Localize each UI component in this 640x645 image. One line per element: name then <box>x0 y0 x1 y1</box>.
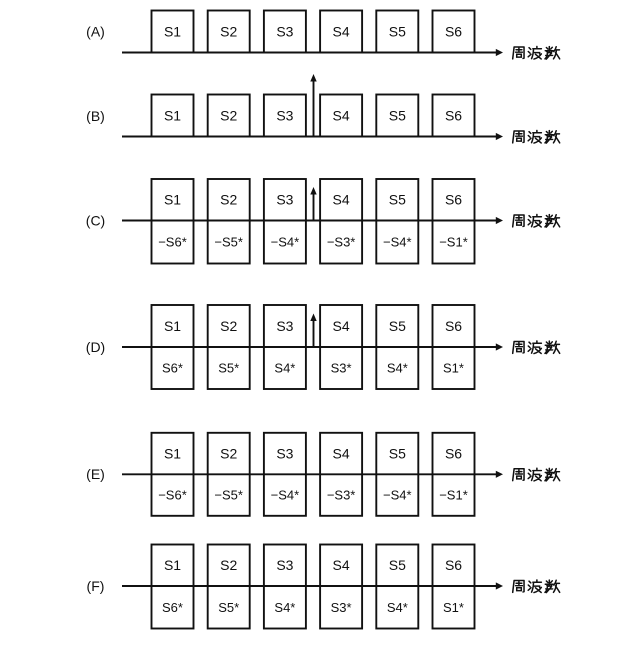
svg-text:S1: S1 <box>164 23 181 39</box>
svg-text:S4*: S4* <box>274 361 295 376</box>
svg-text:S2: S2 <box>220 318 237 334</box>
svg-text:S6: S6 <box>445 192 462 208</box>
svg-text:S5*: S5* <box>218 600 239 615</box>
svg-text:S6*: S6* <box>162 600 183 615</box>
svg-text:S1: S1 <box>164 192 181 208</box>
svg-text:(F): (F) <box>87 578 105 594</box>
svg-text:S4*: S4* <box>274 600 295 615</box>
svg-text:−S4*: −S4* <box>271 235 300 250</box>
svg-text:S4: S4 <box>333 557 350 573</box>
svg-text:S3: S3 <box>276 107 293 123</box>
svg-text:S3: S3 <box>276 23 293 39</box>
svg-text:S4*: S4* <box>387 361 408 376</box>
svg-text:S5: S5 <box>389 192 406 208</box>
svg-text:−S6*: −S6* <box>158 488 187 503</box>
svg-text:−S5*: −S5* <box>214 488 243 503</box>
svg-text:S3*: S3* <box>331 600 352 615</box>
svg-text:S4*: S4* <box>387 600 408 615</box>
svg-text:S5: S5 <box>389 557 406 573</box>
svg-text:−S1*: −S1* <box>439 235 468 250</box>
svg-text:S2: S2 <box>220 23 237 39</box>
svg-text:S2: S2 <box>220 192 237 208</box>
svg-text:−S4*: −S4* <box>271 488 300 503</box>
svg-text:−S3*: −S3* <box>327 488 356 503</box>
svg-text:S6: S6 <box>445 107 462 123</box>
svg-text:S3: S3 <box>276 445 293 461</box>
svg-text:S2: S2 <box>220 445 237 461</box>
svg-text:(B): (B) <box>86 108 105 124</box>
svg-text:−S1*: −S1* <box>439 488 468 503</box>
svg-text:S6: S6 <box>445 557 462 573</box>
svg-text:S5*: S5* <box>218 361 239 376</box>
svg-text:S1: S1 <box>164 107 181 123</box>
svg-text:S4: S4 <box>333 107 350 123</box>
svg-text:S3: S3 <box>276 318 293 334</box>
svg-text:−S5*: −S5* <box>214 235 243 250</box>
svg-text:S6*: S6* <box>162 361 183 376</box>
svg-text:S2: S2 <box>220 557 237 573</box>
svg-text:S4: S4 <box>333 318 350 334</box>
svg-text:S5: S5 <box>389 23 406 39</box>
svg-text:(D): (D) <box>86 339 105 355</box>
svg-text:(C): (C) <box>86 212 105 228</box>
svg-text:S1*: S1* <box>443 600 464 615</box>
svg-text:S4: S4 <box>333 23 350 39</box>
svg-text:S6: S6 <box>445 318 462 334</box>
svg-text:S2: S2 <box>220 107 237 123</box>
svg-text:−S4*: −S4* <box>383 235 412 250</box>
svg-text:S1*: S1* <box>443 361 464 376</box>
svg-text:S5: S5 <box>389 318 406 334</box>
svg-text:−S4*: −S4* <box>383 488 412 503</box>
svg-text:S4: S4 <box>333 192 350 208</box>
svg-text:(A): (A) <box>86 23 105 39</box>
svg-text:−S3*: −S3* <box>327 235 356 250</box>
svg-text:(E): (E) <box>86 466 105 482</box>
svg-text:S1: S1 <box>164 557 181 573</box>
svg-text:S1: S1 <box>164 318 181 334</box>
svg-text:S1: S1 <box>164 445 181 461</box>
svg-text:S3: S3 <box>276 192 293 208</box>
svg-text:S3*: S3* <box>331 361 352 376</box>
svg-text:S5: S5 <box>389 445 406 461</box>
svg-text:S3: S3 <box>276 557 293 573</box>
svg-text:S4: S4 <box>333 445 350 461</box>
svg-text:S6: S6 <box>445 445 462 461</box>
svg-text:S5: S5 <box>389 107 406 123</box>
svg-text:−S6*: −S6* <box>158 235 187 250</box>
svg-text:S6: S6 <box>445 23 462 39</box>
